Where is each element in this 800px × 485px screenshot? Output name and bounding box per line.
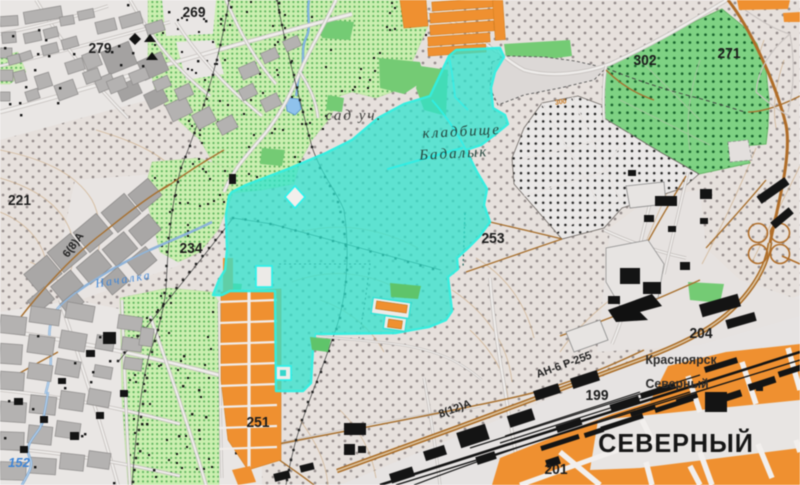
svg-text:302: 302: [633, 53, 656, 70]
svg-text:199: 199: [585, 388, 608, 405]
svg-text:221: 221: [8, 193, 31, 210]
svg-text:271: 271: [717, 46, 740, 63]
svg-text:269: 269: [182, 5, 205, 22]
svg-text:сад уч.: сад уч.: [326, 108, 383, 124]
svg-text:201: 201: [544, 462, 567, 479]
svg-text:СЕВЕРНЫЙ: СЕВЕРНЫЙ: [598, 428, 754, 458]
svg-text:Северный: Северный: [645, 377, 708, 391]
svg-text:152: 152: [8, 455, 30, 470]
svg-text:234: 234: [179, 241, 202, 258]
svg-text:251: 251: [246, 415, 269, 432]
svg-text:204: 204: [689, 326, 712, 343]
svg-text:253: 253: [481, 231, 504, 248]
svg-text:Красноярск: Красноярск: [645, 353, 717, 367]
svg-text:279: 279: [88, 41, 111, 58]
